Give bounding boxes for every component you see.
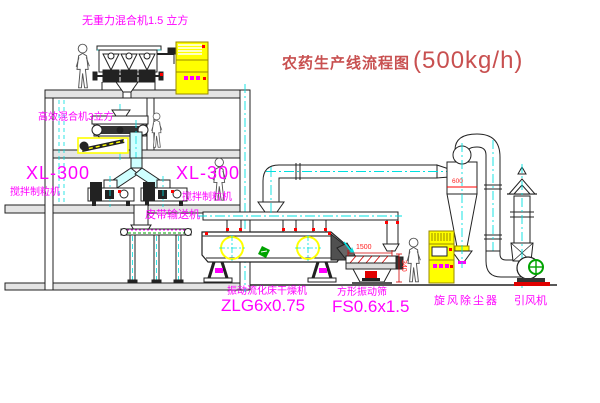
dimension-sieve-length: 1500	[356, 244, 372, 251]
induced-draft-fan	[514, 257, 550, 286]
label-high-efficiency-mixer: 高效混合机3立方	[38, 113, 114, 123]
process-flow-diagram: 农药生产线流程图 (500kg/h) 无重力混合机1.5 立方 高效混合机3立方…	[0, 0, 600, 403]
worker-figure-1	[76, 44, 89, 88]
control-cabinet-1	[176, 42, 208, 94]
label-sieve-model: FS0.6x1.5	[332, 298, 410, 315]
label-granulator-right-model: XL-300	[176, 164, 240, 182]
worker-figure-4	[407, 238, 420, 282]
dimension-cyclone: 600	[452, 179, 463, 186]
label-fan: 引风机	[514, 296, 547, 307]
label-granulator-right-name: 搅拌制粒机	[182, 193, 232, 203]
label-belt-conveyor: 皮带输送机	[145, 210, 200, 221]
dimension-sieve-height: 340	[400, 260, 407, 272]
label-gravity-free-mixer: 无重力混合机1.5 立方	[82, 16, 188, 27]
label-granulator-left-name: 搅拌制粒机	[10, 188, 60, 198]
diagram-title-text: 农药生产线流程图	[282, 52, 410, 73]
label-granulator-left-model: XL-300	[26, 164, 90, 182]
control-cabinet-2	[429, 231, 454, 283]
diagram-title-capacity: (500kg/h)	[413, 47, 523, 75]
label-dryer-model: ZLG6x0.75	[221, 297, 305, 314]
label-cyclone: 旋风除尘器	[434, 296, 499, 307]
diagram-title: 农药生产线流程图 (500kg/h)	[282, 47, 523, 75]
